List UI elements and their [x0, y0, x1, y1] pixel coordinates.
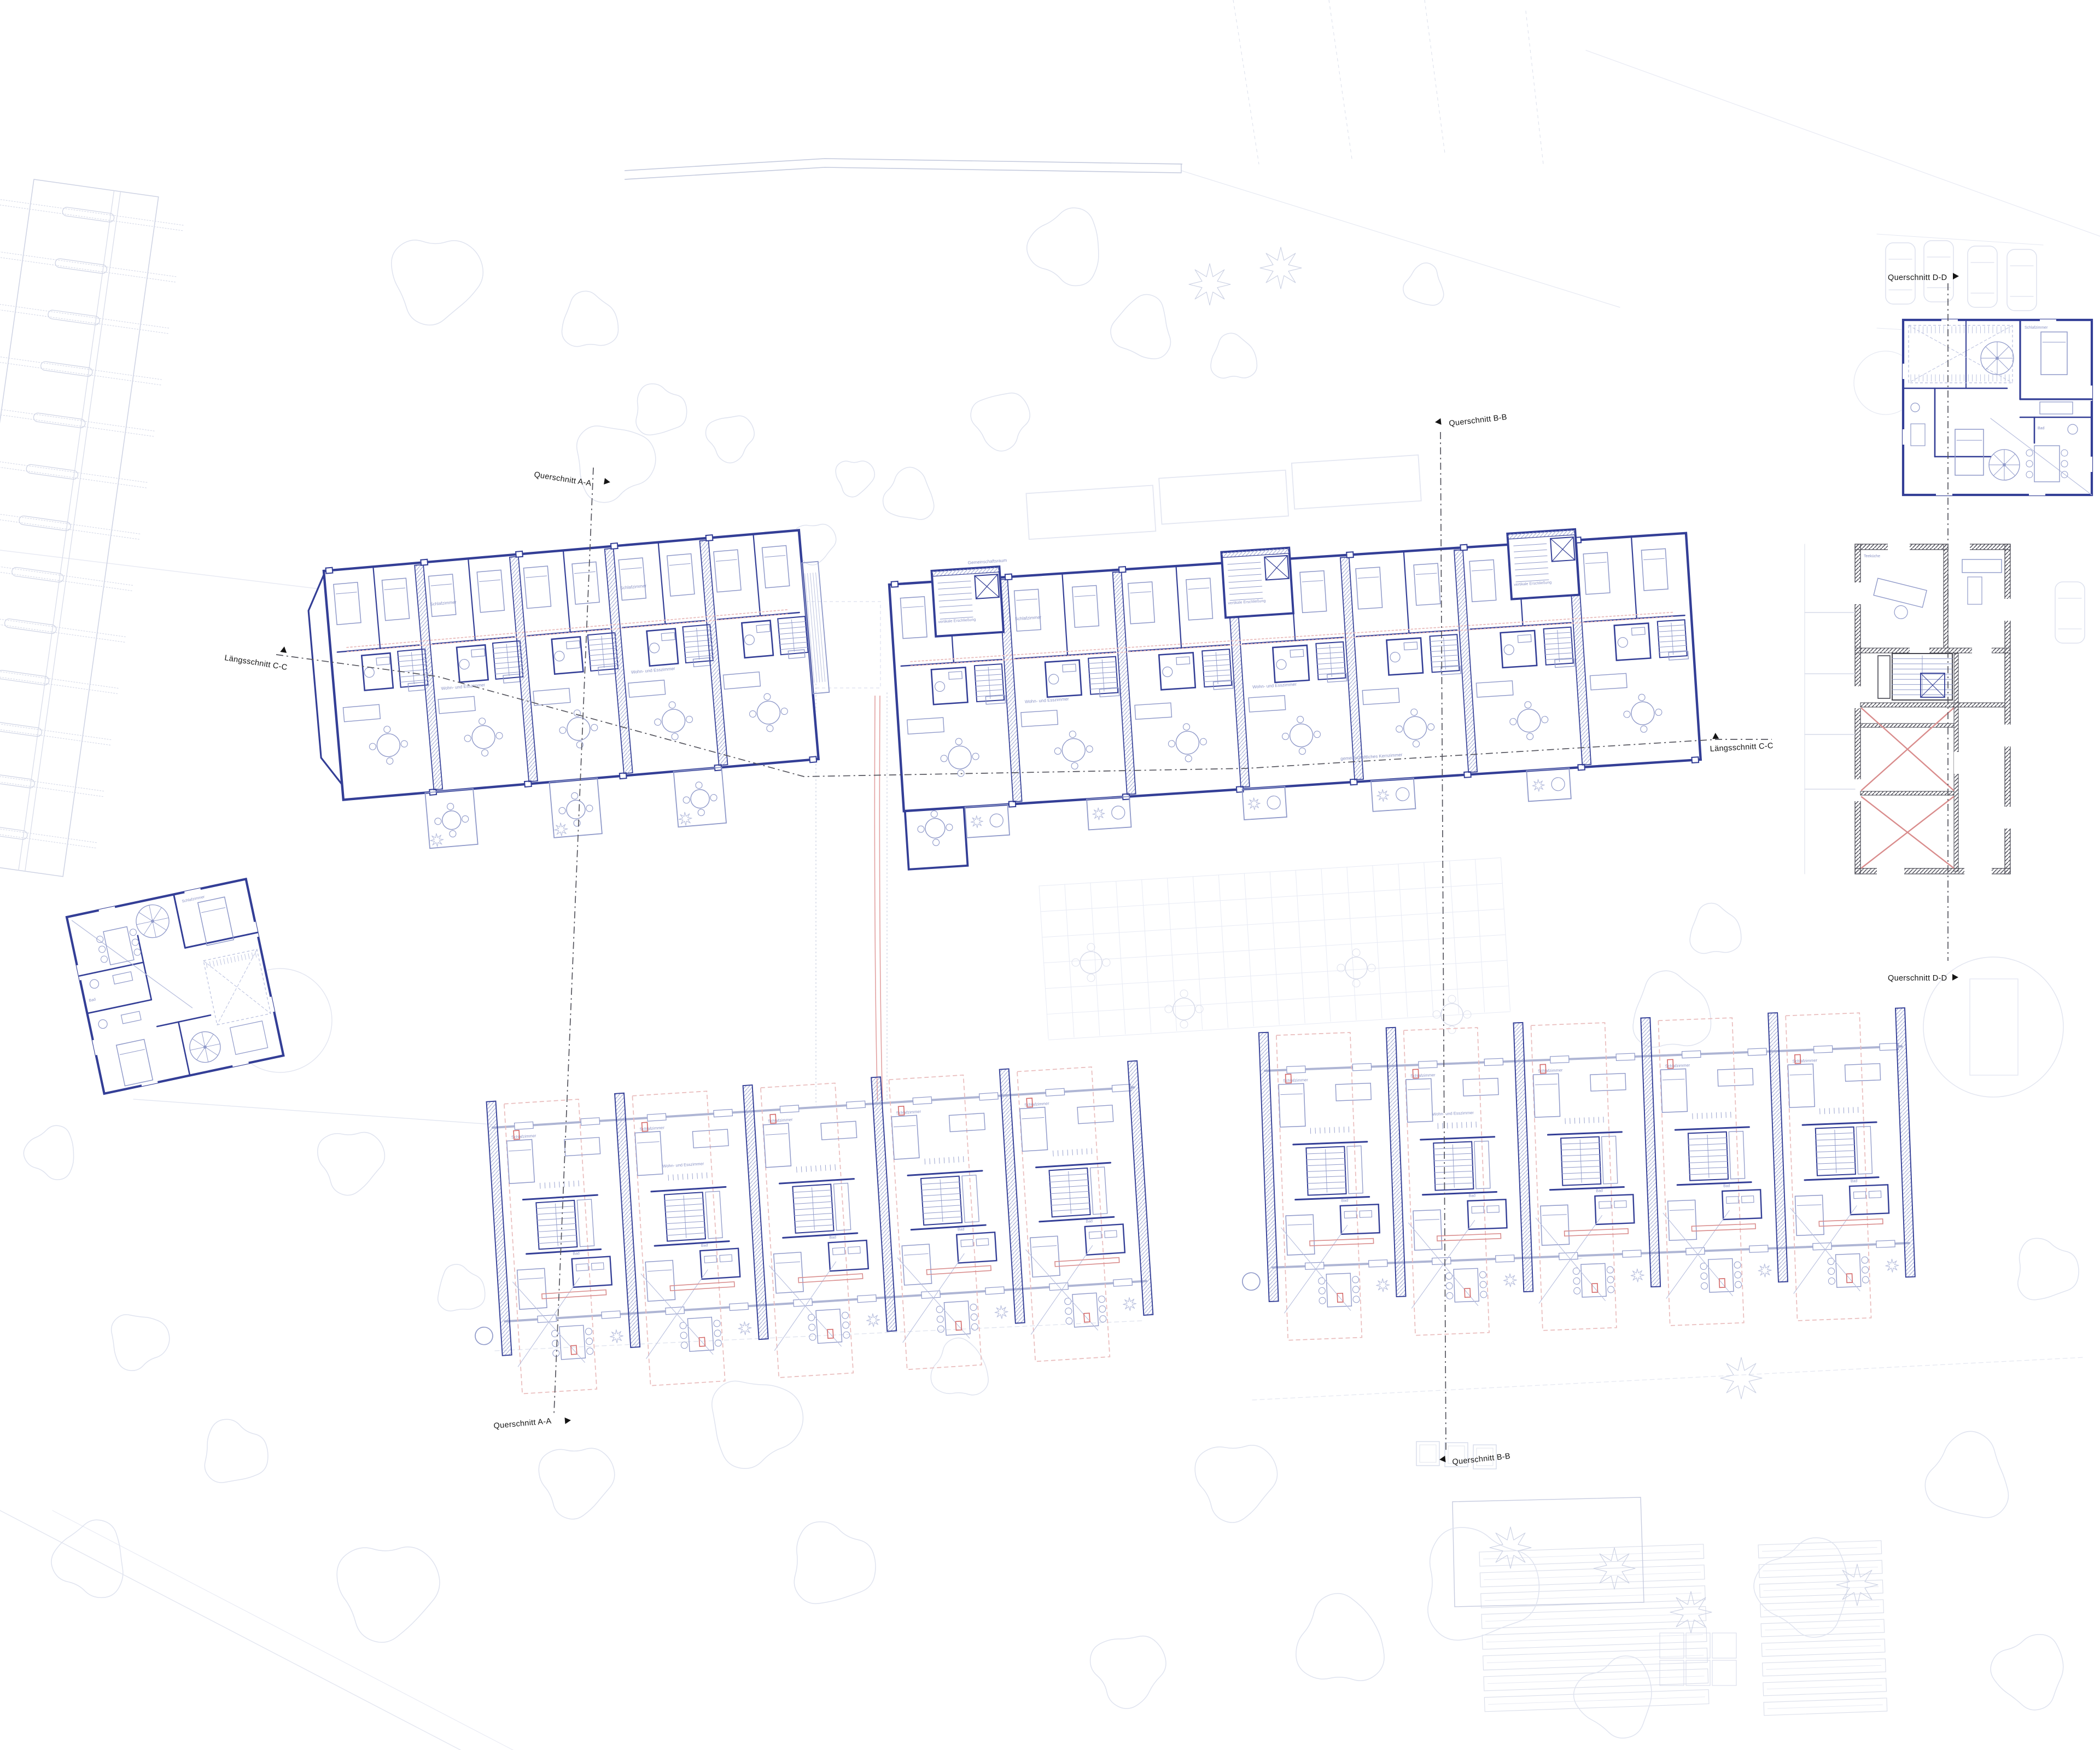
tree-canopies [24, 208, 2079, 1738]
garden-beds [1479, 1544, 1709, 1712]
svg-text:Bad: Bad [573, 1252, 580, 1256]
site-plan-stage: SchlafzimmerWohn- und EsszimmerSchlafzim… [0, 0, 2100, 1750]
section-label-B-top: Querschnitt B-B [1449, 413, 1508, 428]
svg-text:Bad: Bad [1851, 1179, 1858, 1183]
svg-text:Bad: Bad [2038, 427, 2045, 430]
section-arrow-C-left [280, 646, 288, 653]
section-label-D-top: Querschnitt D-D [1888, 273, 1947, 282]
svg-text:Gemeinschaftsraum: Gemeinschaftsraum [967, 558, 1007, 565]
building-villa-southwest: BadSchlafzimmer [65, 877, 285, 1096]
building-slab-central: SchlafzimmerWohn- und EsszimmerSchlafzim… [886, 514, 1706, 870]
svg-text:Bad: Bad [1596, 1189, 1603, 1193]
garden-beds-2 [1758, 1541, 1887, 1716]
section-label-A-bottom: Querschnitt A-A [493, 1417, 552, 1431]
section-arrow-A-top [604, 478, 611, 486]
svg-text:Schlafzimmer: Schlafzimmer [1665, 1063, 1690, 1069]
section-label-B-bottom: Querschnitt B-B [1452, 1452, 1511, 1467]
ghost-roof-outlines [1025, 455, 1422, 539]
building-existing: Teeküche [1805, 542, 2012, 876]
building-pergola-band [0, 175, 188, 880]
section-arrow-C-right [1712, 733, 1719, 739]
svg-text:Schlafzimmer: Schlafzimmer [1283, 1077, 1308, 1083]
building-rowhouses-east: SchlafzimmerBadSchlafzimmerBadWohn- und … [1233, 1008, 1916, 1342]
svg-text:Bad: Bad [701, 1244, 708, 1248]
leafy-plants [644, 247, 1878, 1633]
section-label-D-bottom: Querschnitt D-D [1888, 974, 1947, 983]
svg-text:Bad: Bad [1086, 1220, 1093, 1224]
section-arrow-B-top [1434, 418, 1441, 425]
section-label-C-right: Längsschnitt C-C [1710, 742, 1774, 754]
svg-text:Bad: Bad [1341, 1199, 1349, 1203]
section-arrow-D-top [1953, 273, 1959, 279]
building-slab-northwest: SchlafzimmerWohn- und EsszimmerSchlafzim… [305, 526, 840, 857]
svg-text:Bad: Bad [1468, 1194, 1475, 1198]
section-label-C-left: Längsschnitt C-C [224, 654, 288, 672]
svg-text:Bad: Bad [958, 1228, 965, 1232]
section-label-A-top: Querschnitt A-A [533, 470, 592, 488]
paving-grid [1039, 857, 1510, 1040]
section-arrow-B-bottom [1439, 1456, 1445, 1463]
building-rowhouses-west: SchlafzimmerBadSchlafzimmerBadWohn- und … [460, 1061, 1156, 1397]
svg-text:Schlafzimmer: Schlafzimmer [1538, 1067, 1563, 1074]
svg-text:Bad: Bad [829, 1235, 836, 1240]
svg-text:Schlafzimmer: Schlafzimmer [2025, 326, 2048, 330]
section-arrow-D-bottom [1952, 974, 1958, 981]
svg-text:Teeküche: Teeküche [1864, 555, 1880, 558]
svg-text:Schlafzimmer: Schlafzimmer [1410, 1072, 1436, 1078]
section-arrow-A-bottom [564, 1417, 571, 1424]
site-plan-canvas: SchlafzimmerWohn- und EsszimmerSchlafzim… [0, 0, 2100, 1750]
svg-text:Bad: Bad [1723, 1184, 1730, 1188]
svg-text:Schlafzimmer: Schlafzimmer [1792, 1058, 1817, 1064]
building-villa-northeast: SchlafzimmerBad [1901, 318, 2093, 497]
landscape-layer [0, 0, 2100, 1750]
